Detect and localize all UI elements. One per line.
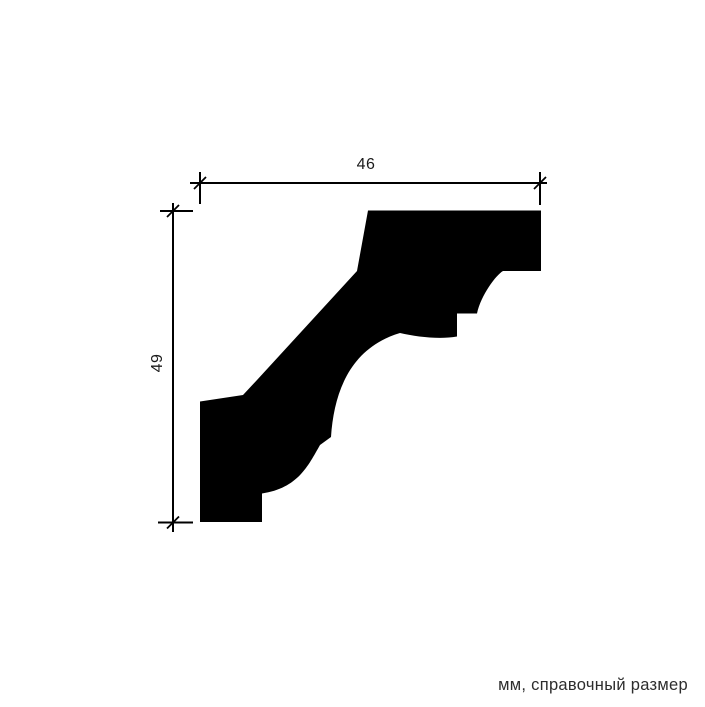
width-dimension [190,172,547,205]
units-caption: мм, справочный размер [498,676,688,694]
molding-profile-shape [200,211,541,523]
molding-profile-drawing: 46 49 мм, справочный размер [0,0,705,707]
width-dimension-label: 46 [357,156,376,173]
height-dimension-label: 49 [149,354,166,373]
technical-drawing-canvas: 46 49 мм, справочный размер [0,0,705,707]
